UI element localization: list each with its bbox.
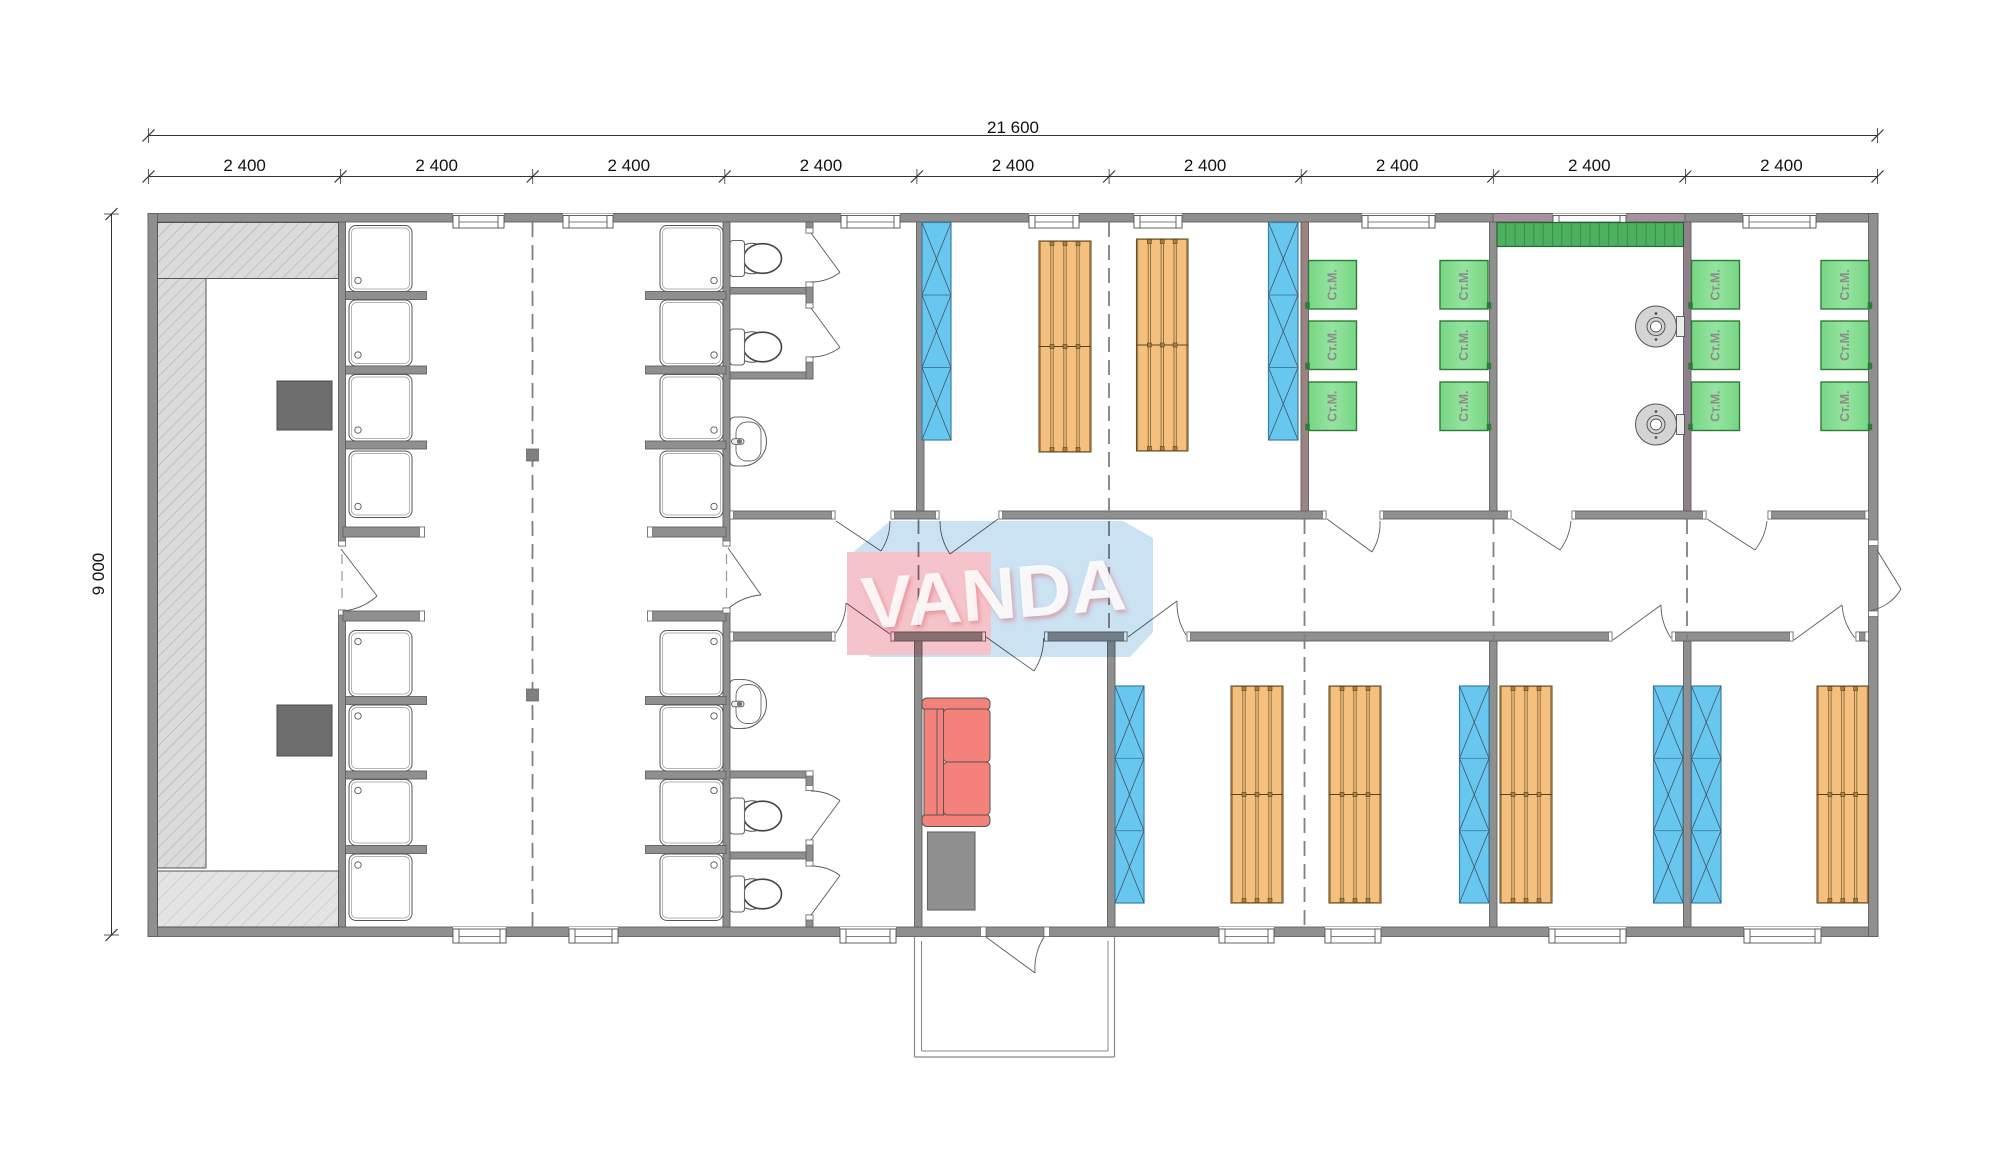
svg-text:Ст.М.: Ст.М. [1709,329,1723,360]
svg-text:Ст.М.: Ст.М. [1838,390,1852,421]
svg-text:Ст.М.: Ст.М. [1709,390,1723,421]
svg-text:Ст.М.: Ст.М. [1457,329,1471,360]
svg-text:2 400: 2 400 [1760,156,1803,175]
svg-text:Ст.М.: Ст.М. [1326,390,1340,421]
svg-text:Ст.М.: Ст.М. [1838,269,1852,300]
svg-text:Ст.М.: Ст.М. [1457,269,1471,300]
svg-text:Ст.М.: Ст.М. [1326,329,1340,360]
svg-text:2 400: 2 400 [223,156,266,175]
svg-text:2 400: 2 400 [1568,156,1611,175]
svg-text:Ст.М.: Ст.М. [1709,269,1723,300]
svg-text:2 400: 2 400 [1376,156,1419,175]
svg-text:2 400: 2 400 [992,156,1035,175]
svg-text:Ст.М.: Ст.М. [1457,390,1471,421]
svg-text:Ст.М.: Ст.М. [1838,329,1852,360]
svg-text:2 400: 2 400 [415,156,458,175]
svg-text:2 400: 2 400 [800,156,843,175]
svg-text:2 400: 2 400 [1184,156,1227,175]
svg-text:21 600: 21 600 [987,118,1039,137]
svg-text:9 000: 9 000 [89,553,108,596]
svg-text:Ст.М.: Ст.М. [1326,269,1340,300]
svg-text:2 400: 2 400 [608,156,651,175]
